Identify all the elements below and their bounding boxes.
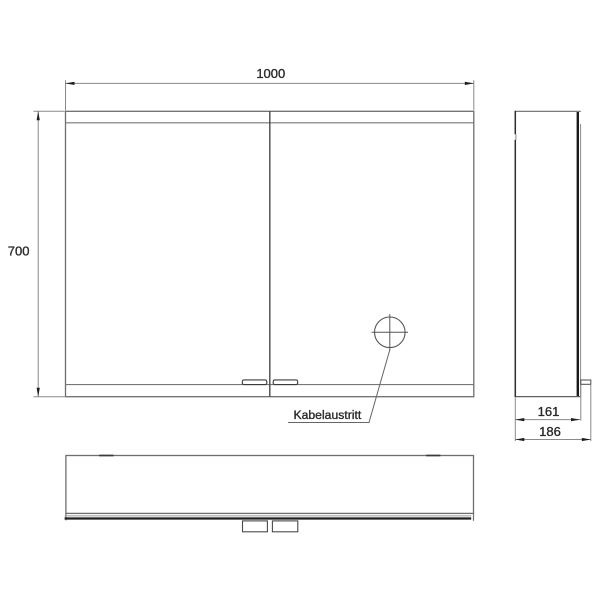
svg-text:161: 161 bbox=[538, 404, 560, 419]
svg-text:186: 186 bbox=[539, 424, 561, 439]
svg-text:700: 700 bbox=[8, 244, 30, 259]
svg-text:1000: 1000 bbox=[256, 66, 285, 81]
svg-text:Kabelaustritt: Kabelaustritt bbox=[294, 408, 362, 422]
